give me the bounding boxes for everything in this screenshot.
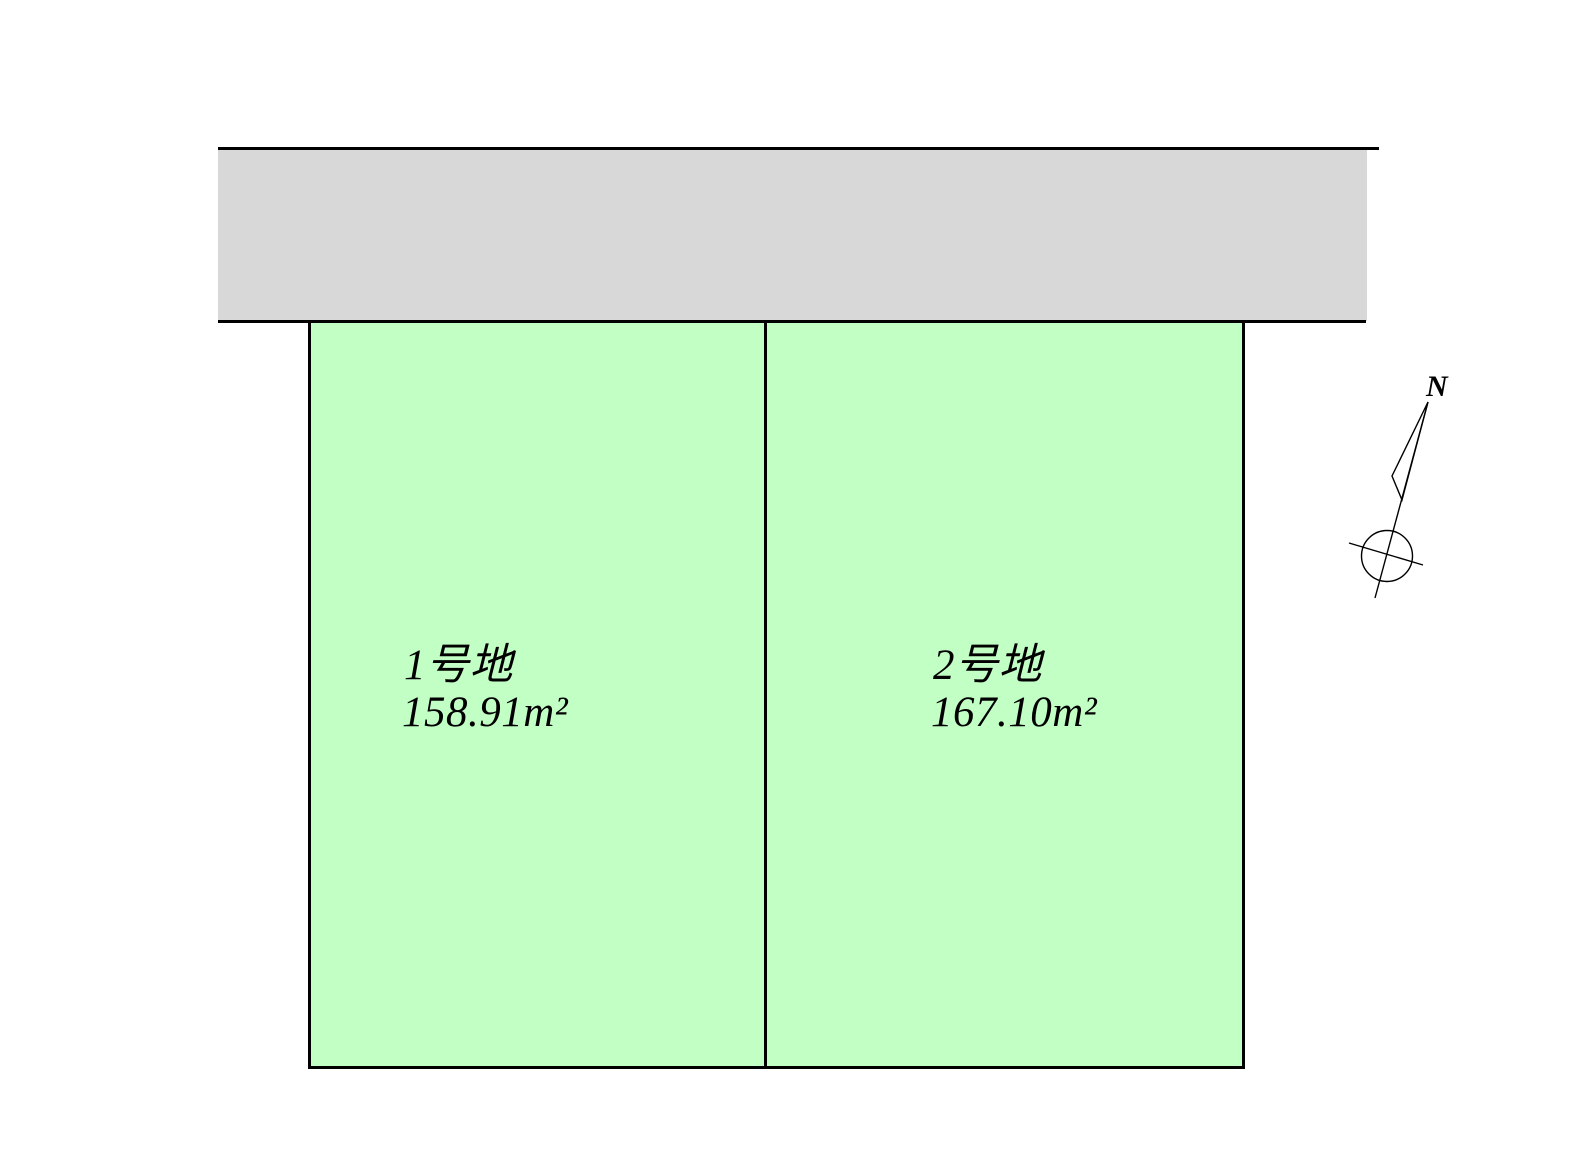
road-top-edge — [218, 147, 1379, 150]
compass-needle-icon — [1392, 402, 1428, 500]
road-area — [218, 148, 1367, 321]
lot-2-name: 2号地 — [931, 642, 1097, 689]
lot-1-area: 158.91m² — [402, 689, 568, 736]
north-label: N — [1425, 370, 1449, 403]
lot-1-label: 1号地 158.91m² — [402, 642, 568, 736]
compass-axis-line — [1375, 402, 1428, 598]
north-compass: N — [1340, 362, 1470, 607]
lot-1-name: 1号地 — [402, 642, 568, 689]
lot-2-area: 167.10m² — [931, 689, 1097, 736]
site-plan-canvas: 1号地 158.91m² 2号地 167.10m² N — [0, 0, 1578, 1154]
lot-2-label: 2号地 167.10m² — [931, 642, 1097, 736]
